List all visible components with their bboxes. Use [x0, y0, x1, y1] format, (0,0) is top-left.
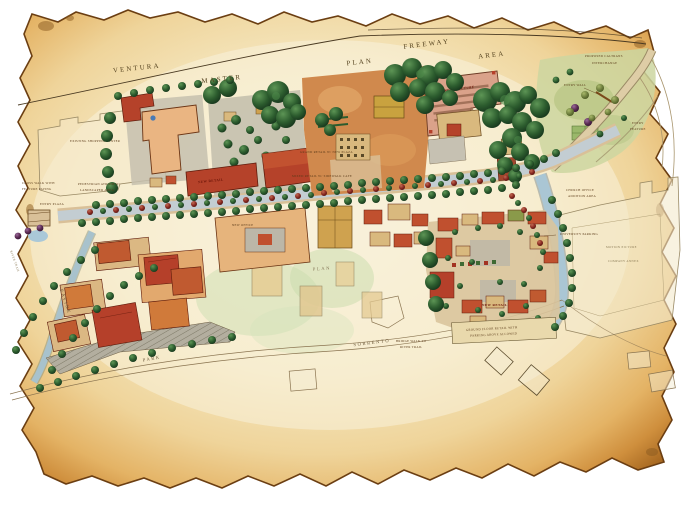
entry-wall-label: ENTRY WALL: [564, 83, 586, 87]
courtyard-pool: [150, 115, 155, 120]
caltrans-label-1: PROPOSED CALTRANS: [585, 54, 623, 58]
entry-plaza-label: ENTRY PLAZA: [40, 202, 65, 206]
new-retail-label-b: NEW RETAIL: [482, 303, 508, 307]
mixed-retail-label: MIXED RETAIL W/ SIDEWALK CAFE: [292, 174, 352, 178]
block-c-field: GRAND RETAIL W/ NEW PLAZA MIXED RETAIL W…: [292, 66, 430, 196]
entry-feature-label-1: ENTRY: [632, 121, 644, 125]
street-bridge: [28, 210, 50, 242]
new-office-label: NEW OFFICE: [232, 223, 253, 227]
existing-center-label: EXISTING SHOPPING CENTER: [70, 139, 121, 143]
caltrans-label-2: INTERCHANGE: [592, 61, 617, 65]
church-office-label-2: ADDITION AREA: [568, 194, 597, 198]
crosswalk-label-1: CROSS WALK WITH: [22, 181, 55, 185]
atrium-label-1: PEDESTRIAN ATRIUM W/: [78, 182, 120, 186]
village-new-retail: NEW RETAIL GROUND FLOOR RETAIL WITH PARK…: [426, 210, 560, 344]
motion-picture-label-1: MOTION PICTURE: [606, 245, 637, 249]
grand-retail-label: GRAND RETAIL W/ NEW PLAZA: [300, 150, 353, 154]
south-gold-building: [318, 206, 352, 248]
bridge-walk-label-2: RIVER TRAIL: [400, 345, 422, 349]
university-parking-label: UNIVERSITY PARKING: [560, 232, 599, 236]
south-office-block: NEW OFFICE: [215, 208, 310, 272]
master-plan-map: EXISTING SHOPPING CENTER MOTION PICTURE …: [0, 0, 700, 510]
motion-picture-label-2: COMPANY ANNEX: [608, 259, 639, 263]
bridge-walk-label-1: BRIDGE WALK TO: [396, 339, 427, 343]
church-office-label-1: CHURCH OFFICE: [566, 188, 594, 192]
atrium-label-2: LANDSCAPED AREA: [80, 188, 114, 192]
entry-feature-label-2: FEATURE: [630, 127, 646, 131]
crosswalk-label-2: FEATURE PAVING: [22, 187, 52, 191]
